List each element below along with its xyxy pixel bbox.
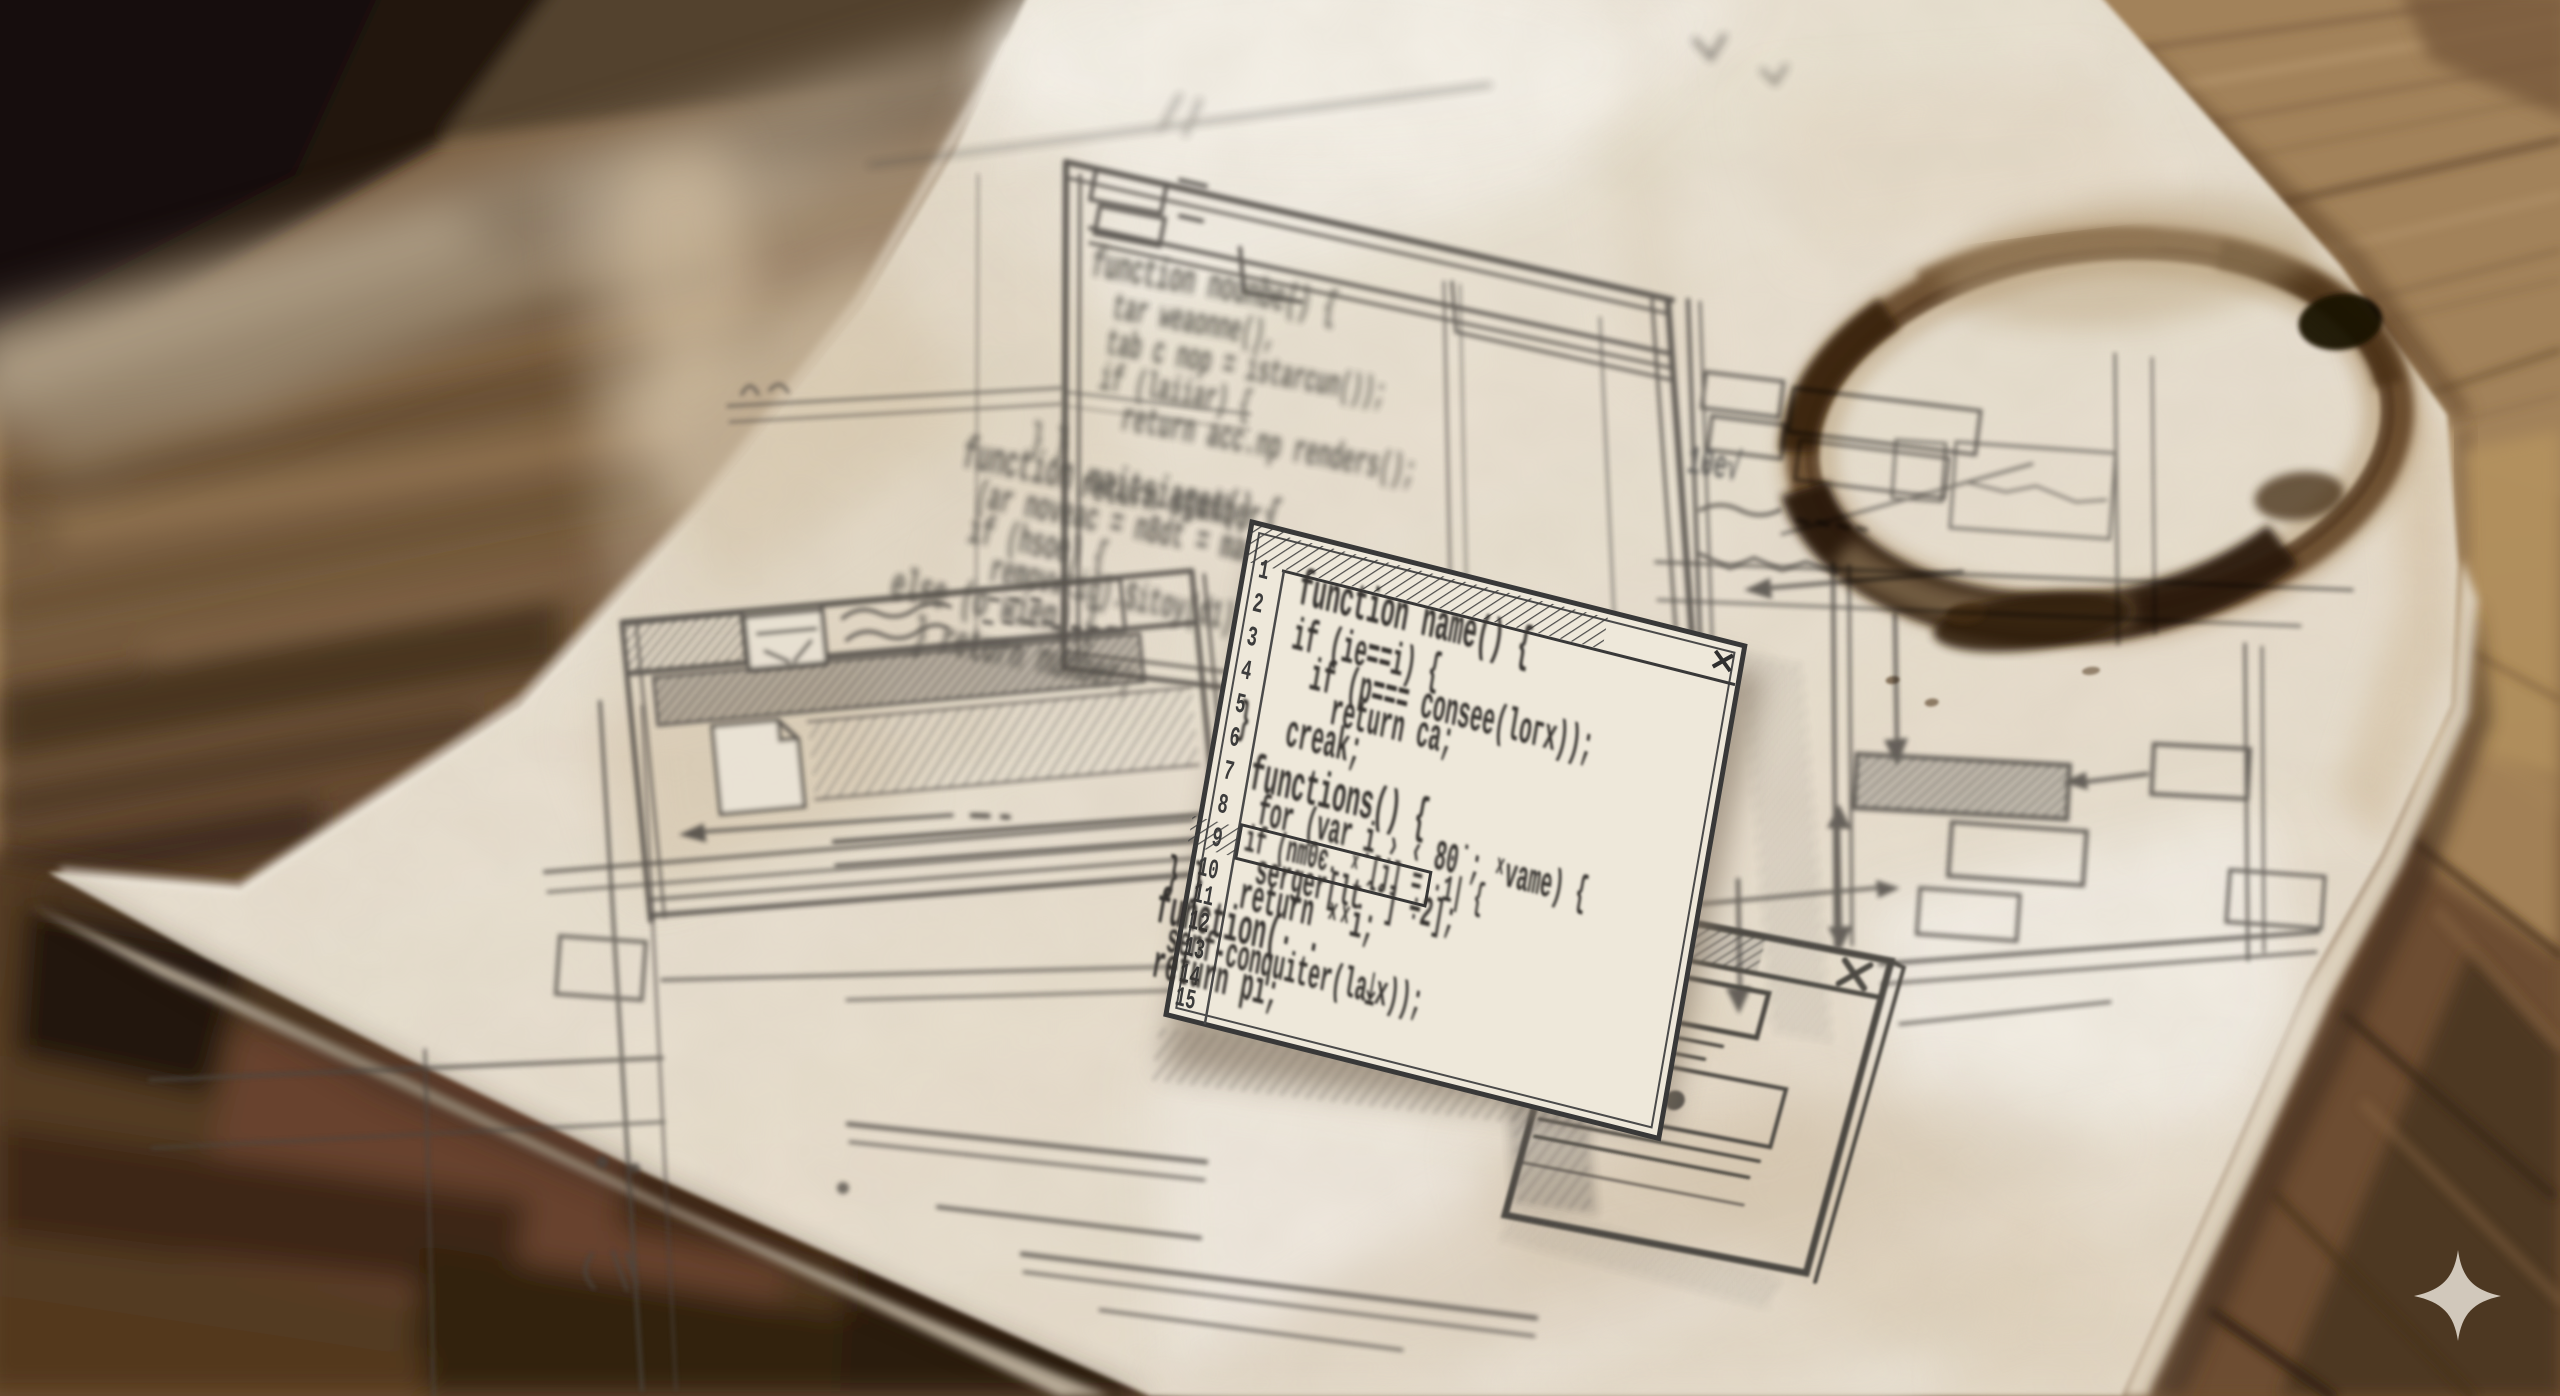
svg-text:10e√: 10e√	[1684, 439, 1743, 493]
